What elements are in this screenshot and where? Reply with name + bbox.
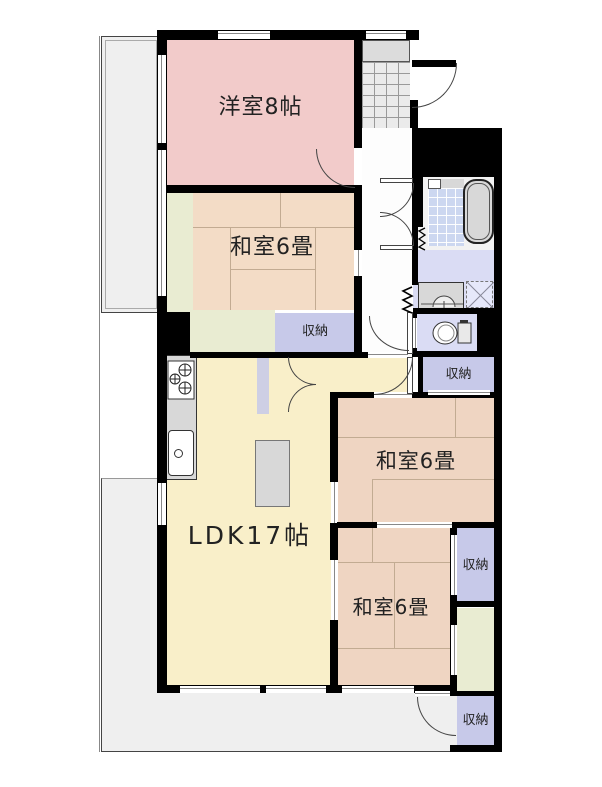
- window-tatami-nw-west: [158, 150, 166, 296]
- window-ldk-south-1: [180, 686, 260, 693]
- tatami-line: [372, 480, 373, 523]
- door-storage-ne: [428, 390, 490, 395]
- floor-plan: 洋室8帖 和室6畳 LDK17帖 和室6畳 和室6畳 収納 収納 収納 収納: [0, 0, 602, 787]
- balcony-outer-line: [99, 36, 100, 752]
- wall-wash-toilet: [413, 308, 494, 314]
- room-label-ldk: LDK17帖: [165, 522, 335, 550]
- storage-label-s: 収納: [457, 714, 494, 728]
- kitchen-sink: [168, 430, 194, 476]
- tatami-line: [455, 398, 456, 437]
- tatami-line: [231, 269, 315, 270]
- slider-tatami-nw-hall: [355, 250, 361, 276]
- washbasin-unit: [418, 282, 464, 309]
- room-label-tatami-s: 和室6畳: [330, 596, 452, 618]
- wall-storage-s-bottom: [450, 745, 502, 752]
- room-label-western: 洋室8帖: [167, 96, 354, 120]
- storage-label-nw: 収納: [275, 325, 355, 339]
- balcony-bottom: [161, 691, 457, 752]
- wall-ldk-east-a: [330, 392, 338, 482]
- bathtub: [463, 179, 494, 244]
- wall-storage-e-green: [457, 601, 494, 607]
- stove-icon: [167, 360, 195, 400]
- bathroom-tile-floor: [428, 188, 464, 246]
- entrance-porch: [362, 40, 410, 62]
- storage-label-e: 収納: [457, 559, 494, 573]
- pantry-floor: [257, 357, 269, 414]
- slider-green-se: [451, 625, 457, 675]
- tatami-edge-se: [457, 608, 494, 691]
- window-top-1: [218, 31, 270, 39]
- window-tatami-s-south: [342, 686, 414, 693]
- window-top-entrance: [366, 31, 406, 39]
- wall-bath-west: [418, 177, 423, 227]
- entrance-door-arc: [412, 63, 457, 108]
- tatami-line: [193, 227, 354, 228]
- balcony-lower-left: [101, 478, 161, 752]
- storage-label-ne: 収納: [423, 368, 494, 382]
- balcony-upper-left: [101, 36, 161, 313]
- tatami-line: [372, 528, 373, 562]
- opening-storage-s: [415, 691, 450, 696]
- tatami-line: [338, 648, 450, 649]
- pillar-kitchen: [157, 312, 190, 355]
- wall-storage-nw-east: [354, 313, 362, 353]
- wall-toilet-storage: [413, 351, 494, 357]
- balcony-inner-line: [105, 40, 157, 309]
- washing-machine-pan: [466, 281, 493, 308]
- accordion-door-washroom-icon: [400, 286, 414, 314]
- toilet-icon: [430, 318, 474, 348]
- room-label-tatami-e: 和室6畳: [338, 450, 494, 473]
- wall-right-main: [494, 177, 502, 751]
- faucet-icon: [174, 449, 183, 458]
- room-label-tatami-nw: 和室6畳: [190, 236, 354, 260]
- toilet-side-wall: [477, 310, 494, 355]
- wall-storage-s-top: [450, 691, 494, 696]
- tatami-edge-south: [190, 310, 275, 352]
- wall-under-storage: [190, 352, 368, 358]
- accordion-door-bath-icon: [417, 227, 427, 251]
- slider-ldk-tatami-e: [331, 482, 337, 523]
- washbasin-icon: [419, 283, 465, 310]
- bathroom-shelf: [428, 179, 441, 189]
- wall-western-south: [157, 185, 362, 193]
- window-ldk-south-2: [266, 686, 326, 693]
- tatami-line: [338, 437, 494, 438]
- slider-tatami-es: [377, 522, 452, 528]
- window-ldk-west: [158, 483, 166, 525]
- wall-hall-west-a: [354, 193, 362, 250]
- wall-western-east: [354, 30, 362, 148]
- window-western-west: [158, 55, 166, 143]
- structure-block: [412, 128, 502, 177]
- washing-machine-x-icon: [467, 282, 494, 309]
- tatami-line: [372, 479, 494, 480]
- tatami-line: [280, 193, 281, 227]
- kitchen-island-counter: [255, 440, 290, 507]
- entrance-genkan-tile: [362, 62, 410, 128]
- wall-ldk-east-c: [330, 620, 338, 691]
